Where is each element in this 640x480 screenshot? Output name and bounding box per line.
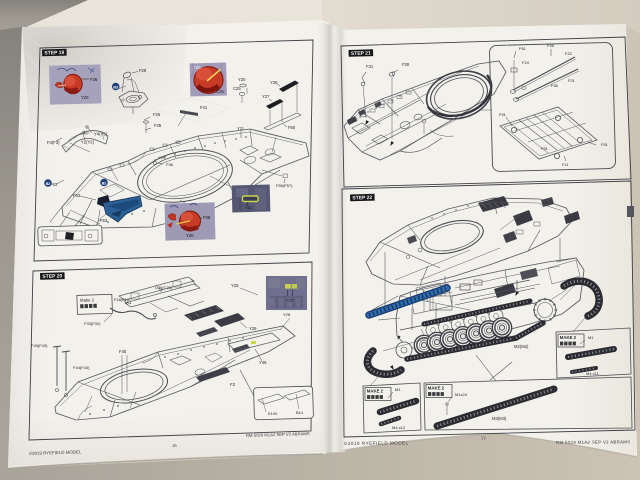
- svg-text:M2(M2): M2(M2): [514, 344, 529, 349]
- svg-text:M4 x11: M4 x11: [586, 371, 600, 376]
- svg-text:Y20: Y20: [238, 77, 246, 82]
- svg-text:F63: F63: [73, 193, 81, 198]
- svg-text:STEP 21: STEP 21: [351, 50, 371, 57]
- svg-text:F43(F43): F43(F43): [31, 343, 48, 348]
- svg-text:MAKE 2: MAKE 2: [428, 386, 445, 391]
- svg-text:STEP 22: STEP 22: [352, 195, 372, 202]
- svg-text:F36: F36: [166, 162, 174, 167]
- svg-text:F25: F25: [153, 112, 161, 117]
- svg-text:Y26: Y26: [270, 80, 278, 85]
- svg-text:M1: M1: [395, 387, 401, 392]
- svg-text:F36: F36: [90, 77, 98, 82]
- svg-text:Y20: Y20: [193, 65, 201, 70]
- svg-text:C25: C25: [216, 89, 224, 94]
- svg-text:M4 x12: M4 x12: [392, 425, 406, 430]
- svg-text:Y20: Y20: [158, 155, 166, 160]
- svg-text:F22: F22: [565, 51, 573, 56]
- svg-text:F28: F28: [139, 68, 147, 73]
- svg-text:F51: F51: [601, 142, 609, 147]
- svg-text:F24: F24: [522, 60, 530, 65]
- svg-text:F33(F32): F33(F32): [84, 321, 101, 326]
- svg-text:B3: B3: [113, 85, 118, 89]
- svg-text:Y20: Y20: [81, 95, 89, 100]
- svg-text:F36: F36: [203, 215, 211, 220]
- svg-text:Y25: Y25: [286, 298, 294, 303]
- svg-text:©2019 RYEFIELD MODEL: ©2019 RYEFIELD MODEL: [344, 439, 409, 446]
- svg-text:C25: C25: [233, 86, 241, 91]
- svg-text:16: 16: [172, 443, 177, 448]
- svg-text:F45: F45: [119, 349, 127, 354]
- svg-text:Y4(Y3): Y4(Y3): [94, 132, 108, 137]
- svg-text:F51: F51: [499, 112, 507, 117]
- svg-text:F2: F2: [230, 382, 236, 387]
- svg-text:Y11: Y11: [245, 205, 253, 210]
- svg-text:M1x24: M1x24: [455, 392, 468, 397]
- svg-text:F11: F11: [562, 162, 569, 167]
- svg-text:B2: B2: [46, 182, 51, 186]
- svg-text:B2: B2: [102, 181, 107, 185]
- svg-text:Y29: Y29: [249, 326, 257, 331]
- svg-text:E100: E100: [268, 411, 278, 416]
- svg-text:77: 77: [481, 436, 487, 441]
- svg-text:B14: B14: [296, 410, 304, 415]
- svg-text:MAKE 2: MAKE 2: [560, 335, 577, 340]
- svg-text:Y46: Y46: [259, 360, 267, 365]
- svg-text:F44(F44): F44(F44): [73, 365, 90, 370]
- svg-text:Y28: Y28: [283, 312, 291, 317]
- svg-text:Y20: Y20: [186, 233, 194, 238]
- svg-text:Y27: Y27: [262, 94, 270, 99]
- svg-text:F41: F41: [200, 105, 208, 110]
- svg-text:Y2(Y2): Y2(Y2): [81, 140, 95, 145]
- svg-text:MAKE 2: MAKE 2: [367, 389, 384, 394]
- svg-text:RM-5029 M1A2 SEP V2 ABRAMS: RM-5029 M1A2 SEP V2 ABRAMS: [556, 439, 631, 445]
- svg-text:M1: M1: [588, 335, 594, 340]
- svg-text:F56(F57): F56(F57): [276, 183, 293, 188]
- svg-text:M3(M3): M3(M3): [492, 416, 507, 421]
- svg-text:F46: F46: [547, 43, 555, 48]
- svg-text:F63: F63: [100, 218, 108, 223]
- svg-text:STEP 20: STEP 20: [42, 273, 62, 280]
- svg-text:STEP 19: STEP 19: [44, 50, 64, 57]
- svg-text:F51: F51: [541, 146, 549, 151]
- svg-text:F35: F35: [154, 123, 162, 128]
- svg-text:F30: F30: [402, 62, 410, 67]
- svg-text:F61: F61: [519, 46, 527, 51]
- svg-text:F21: F21: [568, 78, 576, 83]
- svg-text:F4(F3): F4(F3): [47, 140, 60, 145]
- svg-text:Make 2: Make 2: [80, 297, 95, 302]
- svg-text:F50: F50: [288, 125, 296, 130]
- svg-text:F31: F31: [366, 64, 374, 69]
- svg-text:Y25: Y25: [231, 283, 239, 288]
